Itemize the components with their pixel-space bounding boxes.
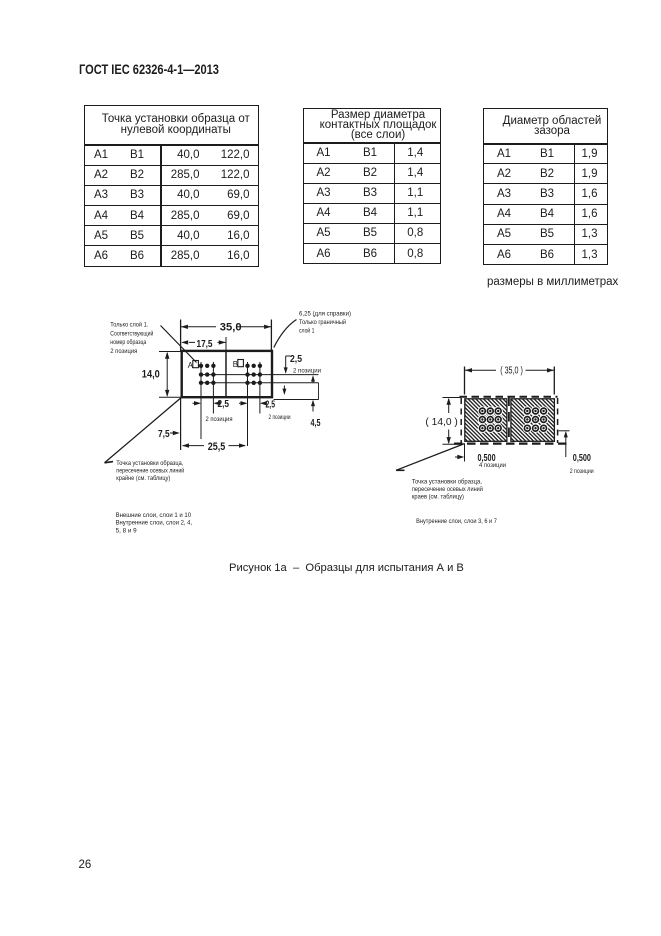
svg-text:Внешние слои, слои 1 и 10: Внешние слои, слои 1 и 10: [116, 512, 192, 519]
svg-text:( 35,0 ): ( 35,0 ): [500, 366, 523, 377]
svg-text:крайне (см. таблицу): крайне (см. таблицу): [116, 474, 170, 482]
svg-text:4 позиции: 4 позиции: [479, 462, 506, 469]
svg-text:слой 1: слой 1: [299, 327, 315, 335]
svg-text:Точка установки образца,: Точка установки образца,: [116, 459, 183, 467]
svg-text:6,25 (для справки): 6,25 (для справки): [299, 310, 351, 317]
svg-text:Соответствующий: Соответствующий: [110, 329, 153, 337]
svg-text:пересечение осевых линий: пересечение осевых линий: [116, 466, 184, 474]
svg-text:Внутренние слои, слои 3, 6 и 7: Внутренние слои, слои 3, 6 и 7: [416, 518, 497, 525]
svg-text:2 позиция: 2 позиция: [206, 416, 233, 423]
svg-text:краев (см. таблицу): краев (см. таблицу): [412, 492, 464, 500]
svg-text:номер образца: номер образца: [110, 338, 146, 346]
svg-text:0,500: 0,500: [573, 452, 591, 464]
svg-text:5, 8 и 9: 5, 8 и 9: [116, 527, 137, 534]
svg-text:7,5: 7,5: [158, 428, 170, 440]
svg-text:35,0: 35,0: [220, 322, 242, 334]
svg-text:2,5: 2,5: [218, 399, 230, 410]
svg-text:17,5: 17,5: [197, 339, 213, 350]
svg-text:4,5: 4,5: [311, 418, 321, 429]
svg-text:Только слой 1.: Только слой 1.: [110, 321, 148, 329]
svg-text:Точка установки образца,: Точка установки образца,: [412, 477, 482, 485]
svg-text:2,5: 2,5: [290, 354, 302, 365]
svg-text:14,0: 14,0: [142, 369, 160, 381]
svg-text:2 позиции: 2 позиции: [269, 414, 291, 421]
svg-text:Внутренние слои, слои 2, 4,: Внутренние слои, слои 2, 4,: [116, 520, 193, 527]
svg-text:2 позиции: 2 позиции: [570, 468, 594, 475]
svg-text:Только граничный: Только граничный: [299, 318, 346, 326]
svg-text:2 позиции: 2 позиции: [293, 367, 321, 374]
svg-text:( 14,0 ): ( 14,0 ): [425, 417, 457, 428]
svg-text:пересечение осевых линий: пересечение осевых линий: [412, 485, 483, 493]
svg-text:2,5: 2,5: [266, 400, 276, 411]
svg-text:2 позиция: 2 позиция: [110, 348, 137, 355]
svg-text:25,5: 25,5: [208, 441, 226, 453]
